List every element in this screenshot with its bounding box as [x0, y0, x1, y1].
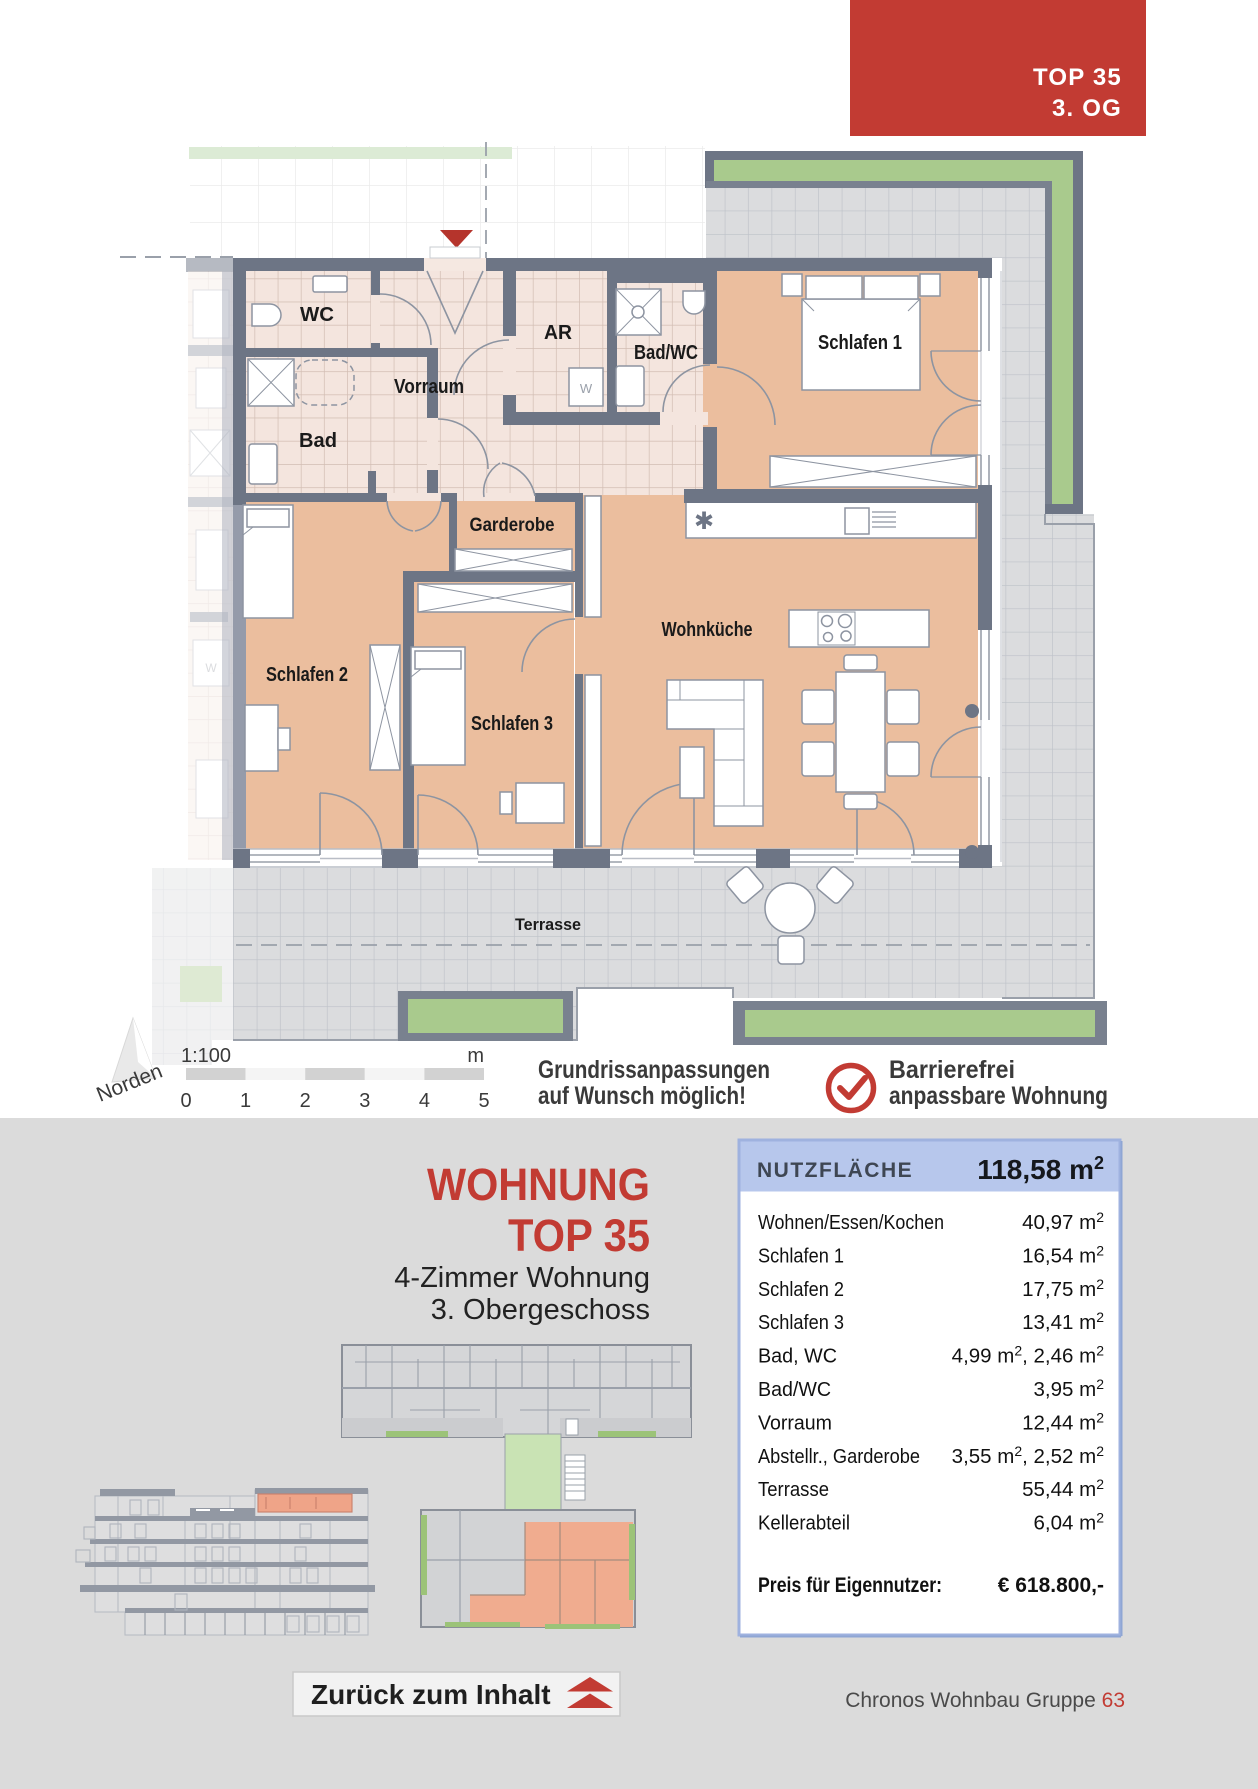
svg-text:4: 4	[419, 1090, 430, 1112]
svg-text:auf Wunsch möglich!: auf Wunsch möglich!	[538, 1082, 746, 1110]
svg-text:Wohnen/Essen/Kochen: Wohnen/Essen/Kochen	[758, 1211, 944, 1234]
svg-text:1:100: 1:100	[181, 1045, 231, 1067]
svg-text:Vorraum: Vorraum	[394, 376, 464, 398]
svg-text:Bad/WC: Bad/WC	[758, 1378, 831, 1401]
svg-text:TOP 35: TOP 35	[508, 1210, 650, 1261]
svg-text:3. Obergeschoss: 3. Obergeschoss	[431, 1294, 650, 1326]
svg-text:4,99 m2, 2,46 m2: 4,99 m2, 2,46 m2	[952, 1343, 1105, 1368]
svg-text:12,44 m2: 12,44 m2	[1022, 1409, 1104, 1434]
svg-text:1: 1	[240, 1090, 251, 1112]
svg-text:55,44 m2: 55,44 m2	[1022, 1476, 1104, 1501]
svg-text:W: W	[205, 661, 217, 675]
svg-text:Abstellr., Garderobe: Abstellr., Garderobe	[758, 1445, 920, 1468]
svg-text:m: m	[467, 1045, 484, 1067]
svg-text:Schlafen 3: Schlafen 3	[471, 713, 553, 735]
svg-text:anpassbare Wohnung: anpassbare Wohnung	[889, 1082, 1108, 1110]
svg-text:AR: AR	[544, 322, 573, 344]
svg-text:Bad: Bad	[299, 430, 337, 452]
svg-text:Preis für Eigennutzer:: Preis für Eigennutzer:	[758, 1574, 942, 1597]
svg-text:Terrasse: Terrasse	[758, 1478, 829, 1501]
svg-text:16,54 m2: 16,54 m2	[1022, 1242, 1104, 1267]
svg-text:Terrasse: Terrasse	[515, 915, 581, 934]
svg-text:6,04 m2: 6,04 m2	[1034, 1510, 1105, 1535]
svg-text:118,58 m2: 118,58 m2	[977, 1153, 1104, 1185]
svg-text:3,55 m2, 2,52 m2: 3,55 m2, 2,52 m2	[952, 1443, 1105, 1468]
svg-text:✱: ✱	[694, 508, 714, 535]
svg-text:3: 3	[359, 1090, 370, 1112]
svg-text:5: 5	[478, 1090, 489, 1112]
svg-text:Schlafen 2: Schlafen 2	[758, 1278, 844, 1301]
svg-text:3. OG: 3. OG	[1052, 95, 1122, 122]
svg-text:Wohnküche: Wohnküche	[662, 619, 753, 641]
svg-text:0: 0	[180, 1090, 191, 1112]
svg-text:Zurück zum Inhalt: Zurück zum Inhalt	[311, 1679, 551, 1710]
svg-text:€ 618.800,-: € 618.800,-	[998, 1574, 1104, 1597]
svg-text:Kellerabteil: Kellerabteil	[758, 1512, 850, 1535]
svg-text:17,75 m2: 17,75 m2	[1022, 1276, 1104, 1301]
svg-text:Garderobe: Garderobe	[470, 515, 555, 536]
svg-text:40,97 m2: 40,97 m2	[1022, 1209, 1104, 1234]
svg-text:Bad, WC: Bad, WC	[758, 1345, 837, 1368]
svg-text:Schlafen 2: Schlafen 2	[266, 664, 348, 686]
svg-text:13,41 m2: 13,41 m2	[1022, 1309, 1104, 1334]
svg-text:2: 2	[300, 1090, 311, 1112]
svg-text:W: W	[580, 381, 593, 396]
svg-text:Schlafen 1: Schlafen 1	[818, 332, 902, 354]
svg-text:Bad/WC: Bad/WC	[634, 342, 698, 364]
svg-text:WOHNUNG: WOHNUNG	[427, 1159, 650, 1210]
svg-text:4-Zimmer Wohnung: 4-Zimmer Wohnung	[394, 1262, 650, 1294]
svg-text:TOP 35: TOP 35	[1033, 64, 1122, 91]
svg-text:Barrierefrei: Barrierefrei	[889, 1056, 1015, 1084]
svg-text:Vorraum: Vorraum	[758, 1411, 832, 1434]
svg-text:NUTZFLÄCHE: NUTZFLÄCHE	[757, 1159, 913, 1182]
svg-text:Chronos Wohnbau Gruppe 63: Chronos Wohnbau Gruppe 63	[845, 1689, 1125, 1712]
svg-text:Schlafen 1: Schlafen 1	[758, 1244, 844, 1267]
svg-text:WC: WC	[300, 304, 334, 326]
svg-text:Schlafen 3: Schlafen 3	[758, 1311, 844, 1334]
svg-text:Grundrissanpassungen: Grundrissanpassungen	[538, 1056, 770, 1084]
svg-text:3,95 m2: 3,95 m2	[1034, 1376, 1105, 1401]
